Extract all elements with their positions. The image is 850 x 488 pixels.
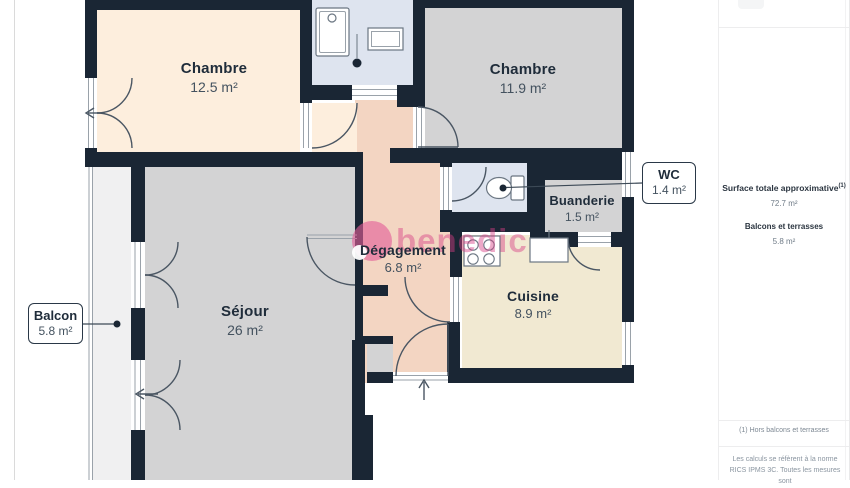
floor-plan-page: benedic Chambre 12.5 m² Chambre 11.9 m² …	[0, 0, 850, 480]
room-buanderie	[545, 180, 622, 232]
room-sejour	[145, 167, 355, 480]
balconies-title: Balcons et terrasses	[719, 222, 849, 231]
sidebar-logo-chip	[738, 0, 764, 9]
callout-balcon: Balcon 5.8 m²	[28, 303, 83, 344]
sidebar-divider	[719, 420, 849, 421]
sidebar-divider	[719, 27, 849, 28]
surface-total-title: Surface totale approximative(1)	[719, 183, 849, 193]
entry-landing	[367, 344, 393, 372]
stove-icon	[464, 236, 500, 266]
bathroom-sink-icon	[368, 28, 403, 50]
surface-summary: Surface totale approximative(1) 72.7 m² …	[719, 183, 849, 246]
footnote: (1) Hors balcons et terrasses	[719, 427, 849, 434]
sidebar-divider	[719, 446, 849, 447]
shower-icon	[316, 8, 349, 56]
legal-text: Les calculs se réfèrent à la norme RICS …	[725, 455, 845, 488]
room-chambre-2	[425, 8, 622, 148]
balconies-value: 5.8 m²	[719, 237, 849, 246]
info-sidebar: Surface totale approximative(1) 72.7 m² …	[718, 0, 850, 480]
surface-total-value: 72.7 m²	[719, 199, 849, 208]
callout-wc: WC 1.4 m²	[642, 162, 696, 204]
